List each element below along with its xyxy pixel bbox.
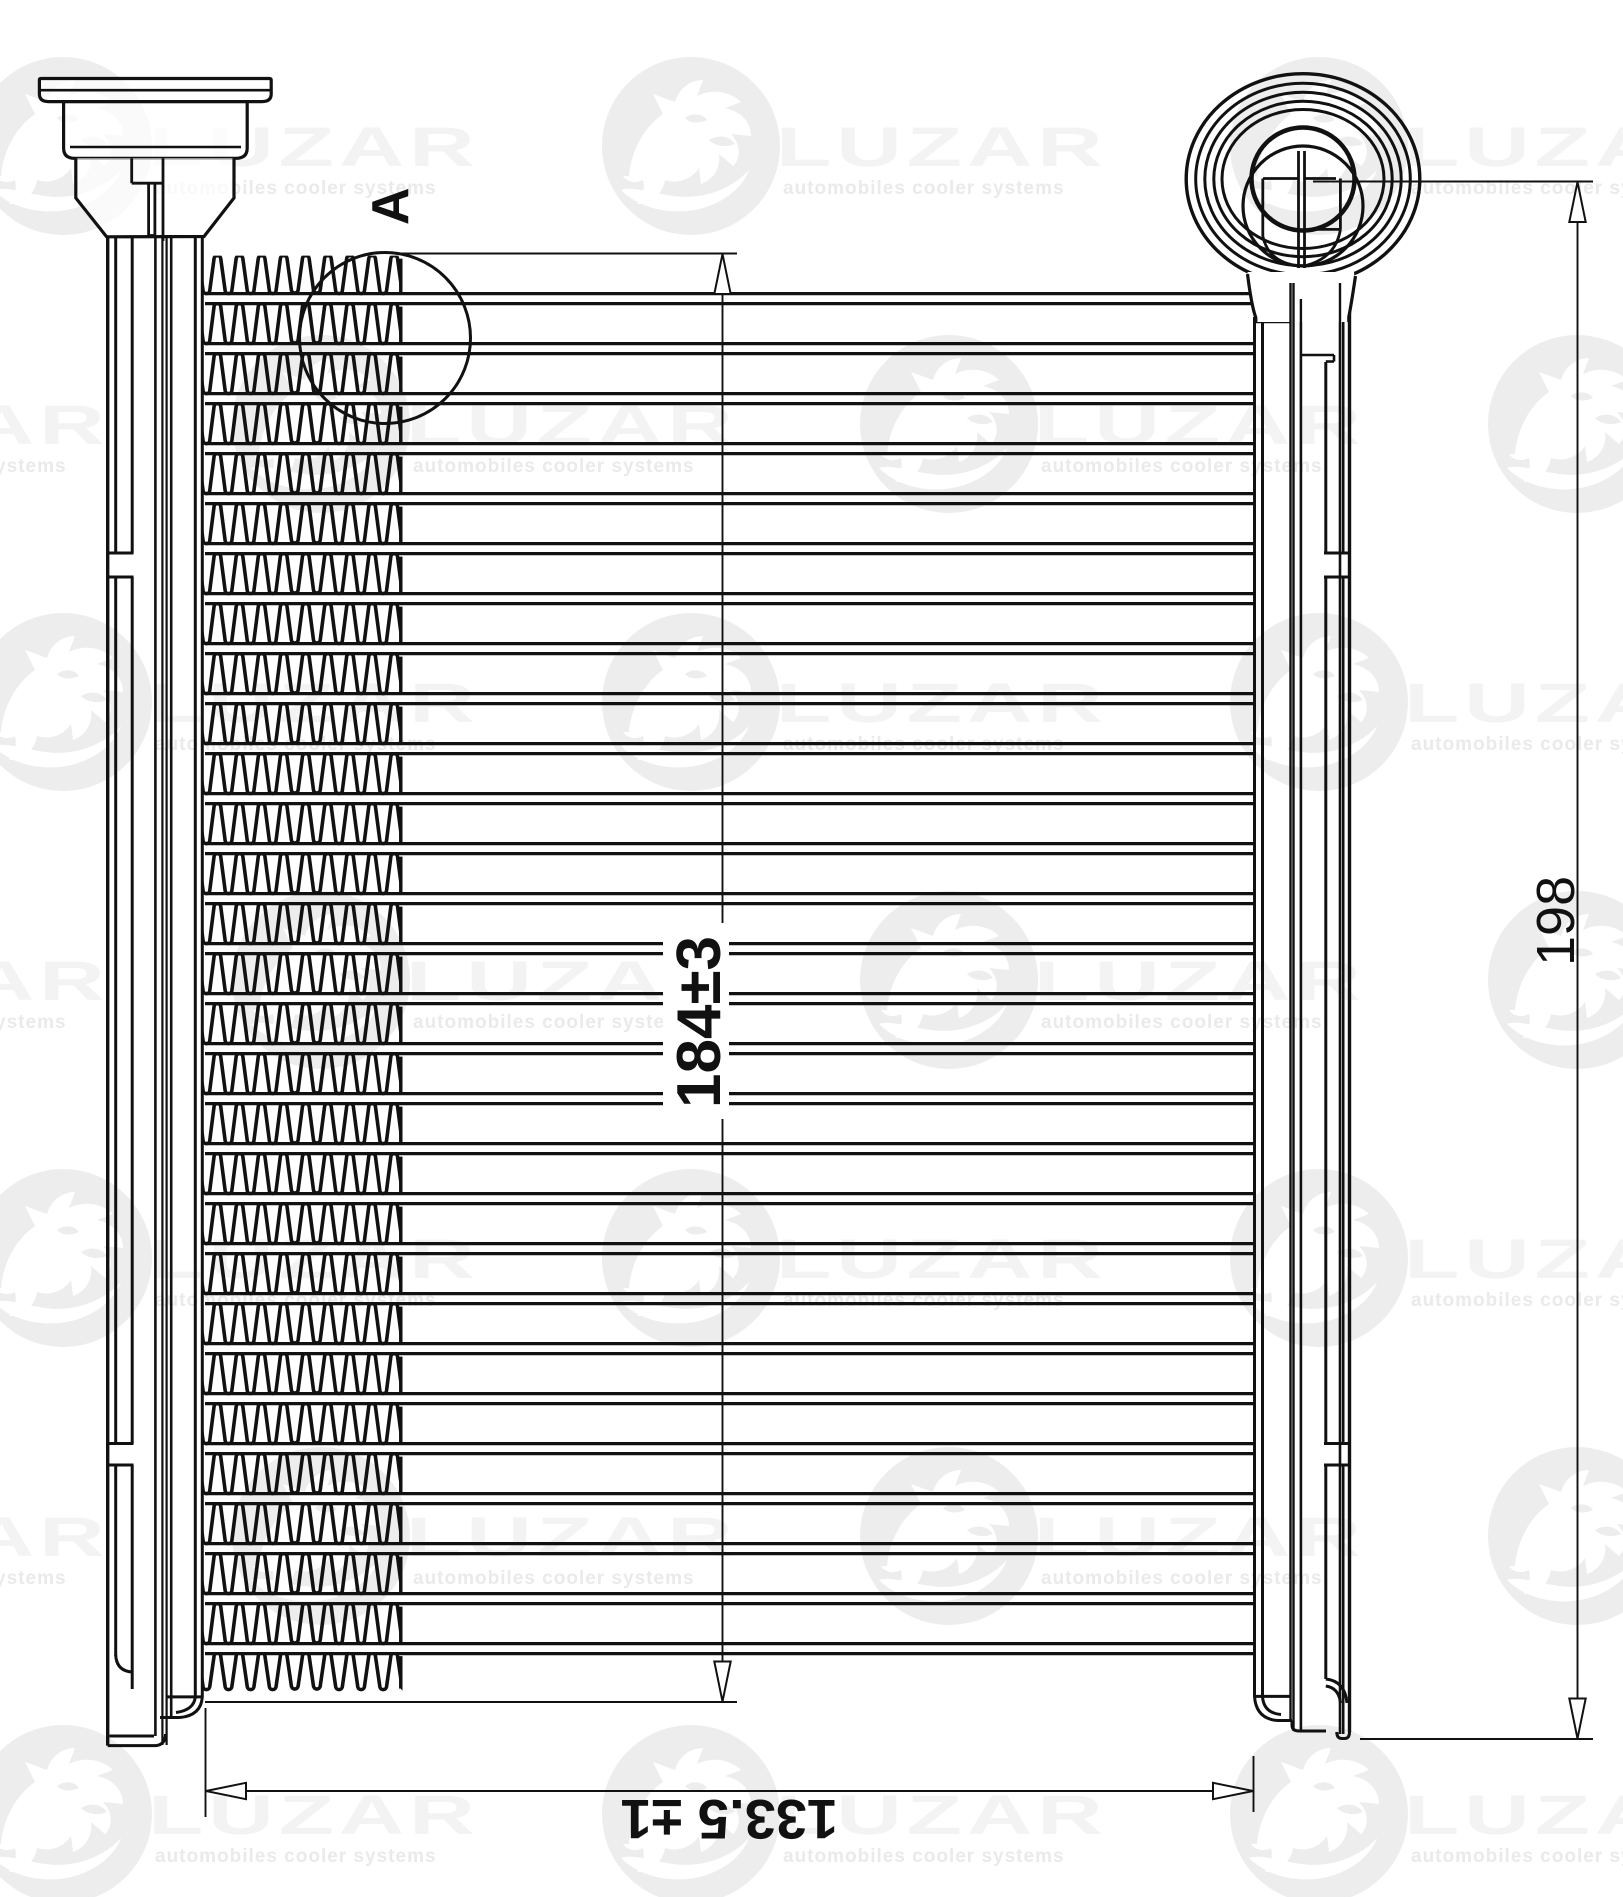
svg-text:automobiles cooler systems: automobiles cooler systems — [0, 1568, 67, 1589]
svg-text:automobiles cooler systems: automobiles cooler systems — [413, 456, 695, 477]
svg-text:LUZAR: LUZAR — [406, 1505, 738, 1567]
svg-text:LUZAR: LUZAR — [1404, 1227, 1623, 1289]
svg-text:LUZAR: LUZAR — [0, 393, 110, 455]
svg-text:LUZAR: LUZAR — [776, 115, 1108, 177]
svg-text:automobiles cooler systems: automobiles cooler systems — [413, 1568, 695, 1589]
svg-text:automobiles cooler systems: automobiles cooler systems — [0, 456, 67, 477]
svg-text:automobiles cooler systems: automobiles cooler systems — [1041, 1568, 1323, 1589]
svg-text:automobiles cooler systems: automobiles cooler systems — [783, 178, 1065, 199]
svg-text:198: 198 — [1526, 876, 1586, 966]
svg-text:LUZAR: LUZAR — [1404, 671, 1623, 733]
svg-text:LUZAR: LUZAR — [0, 949, 110, 1011]
svg-text:LUZAR: LUZAR — [776, 1227, 1108, 1289]
svg-text:LUZAR: LUZAR — [148, 1783, 480, 1845]
svg-text:automobiles cooler systems: automobiles cooler systems — [1411, 1846, 1623, 1867]
svg-text:133.5 ±1: 133.5 ±1 — [620, 1788, 838, 1851]
svg-text:A: A — [362, 187, 420, 225]
svg-text:LUZAR: LUZAR — [1404, 1783, 1623, 1845]
svg-text:automobiles cooler systems: automobiles cooler systems — [155, 1846, 437, 1867]
svg-text:LUZAR: LUZAR — [0, 1505, 110, 1567]
svg-text:automobiles cooler systems: automobiles cooler systems — [1411, 1290, 1623, 1311]
svg-text:automobiles cooler systems: automobiles cooler systems — [1041, 456, 1323, 477]
svg-text:automobiles cooler systems: automobiles cooler systems — [1041, 1012, 1323, 1033]
svg-text:184±3: 184±3 — [665, 936, 734, 1108]
svg-text:automobiles cooler systems: automobiles cooler systems — [0, 1012, 67, 1033]
svg-text:LUZAR: LUZAR — [1034, 1505, 1366, 1567]
svg-text:LUZAR: LUZAR — [1404, 115, 1623, 177]
svg-text:automobiles cooler systems: automobiles cooler systems — [413, 1012, 695, 1033]
svg-text:automobiles cooler systems: automobiles cooler systems — [1411, 734, 1623, 755]
